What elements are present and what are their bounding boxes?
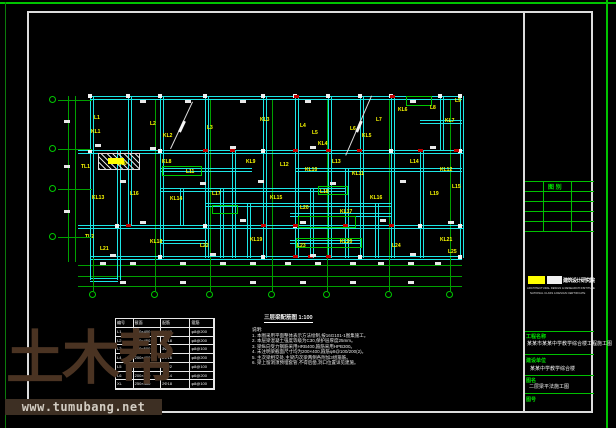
- dim-text: [64, 165, 70, 168]
- grid-bubble: [49, 233, 56, 240]
- beam-label: KL18: [150, 240, 162, 245]
- beam-label: L19: [430, 192, 439, 197]
- dim-text: [120, 281, 126, 284]
- titleblock-line: [525, 375, 594, 376]
- beam-label: L12: [280, 163, 289, 168]
- titleblock-line: [543, 181, 544, 231]
- beam: [247, 203, 251, 258]
- beam: [205, 96, 209, 258]
- field-value-client: 某某中学教学综合楼: [530, 365, 575, 372]
- dim-text: [240, 219, 246, 222]
- dim-text: [140, 221, 146, 224]
- beam-label: L8: [430, 106, 436, 111]
- beam-label: KL3: [260, 118, 269, 123]
- grid-line: [272, 100, 273, 258]
- dim-text: [150, 147, 156, 150]
- beam: [117, 258, 121, 280]
- rebar-mark: [326, 149, 331, 152]
- beam-label: L10: [118, 162, 127, 167]
- rebar-mark: [293, 224, 298, 227]
- beam: [232, 150, 236, 258]
- dim-text: [378, 262, 384, 265]
- dim-text: [240, 100, 246, 103]
- field-value-project: 某某市某某中学教学综合楼工程施工图: [527, 340, 612, 347]
- grid-line: [389, 258, 390, 291]
- beam-label: KL16: [370, 196, 382, 201]
- dim-text: [140, 100, 146, 103]
- joint-mark: [358, 94, 362, 98]
- joint-mark: [261, 255, 265, 259]
- beam-label: L2: [150, 122, 156, 127]
- beam-label: L11: [186, 170, 194, 175]
- dim-text: [310, 254, 316, 257]
- institute-logo-icon: [528, 276, 545, 284]
- beam-label: L5: [312, 131, 318, 136]
- rebar-mark: [261, 224, 266, 227]
- grid-line: [272, 258, 273, 291]
- joint-mark: [158, 94, 162, 98]
- joint-mark: [203, 94, 207, 98]
- grid-line: [58, 100, 92, 101]
- joint-mark: [458, 255, 462, 259]
- grid-line: [210, 258, 211, 291]
- dim-text: [95, 144, 101, 147]
- dim-text: [380, 219, 386, 222]
- dim-text: [315, 262, 321, 265]
- rebar-mark: [418, 149, 423, 152]
- beam: [460, 96, 464, 258]
- notes-list: 1. 本图采用平面整体表示方法绘制,按16G101-1图集施工。2. 本层梁混凝…: [252, 333, 368, 365]
- grid-bubble: [206, 291, 213, 298]
- institute-name: 建筑设计研究院: [563, 277, 595, 284]
- joint-mark: [126, 94, 130, 98]
- grid-line: [450, 258, 451, 291]
- beam: [375, 203, 379, 258]
- beam: [180, 188, 184, 225]
- beam-label: L7: [376, 118, 382, 123]
- joint-mark: [326, 94, 330, 98]
- dim-text: [310, 146, 316, 149]
- field-label-client: 建设单位: [526, 357, 546, 364]
- titleblock-line: [525, 221, 594, 222]
- rebar-mark: [230, 149, 235, 152]
- beam-label: KL20: [340, 240, 352, 245]
- beam: [420, 150, 424, 258]
- dim-text: [430, 146, 436, 149]
- dim-text: [120, 180, 126, 183]
- titleblock-line: [525, 331, 594, 332]
- grid-line: [58, 237, 92, 238]
- grid-bubble: [385, 291, 392, 298]
- beam-label: KL19: [250, 238, 262, 243]
- plan-title: 三层梁配筋图 1:100: [264, 313, 313, 323]
- dim-text: [200, 182, 206, 185]
- beam: [328, 96, 332, 258]
- beam-label: KL4: [318, 142, 327, 147]
- titleblock-line: [525, 393, 594, 394]
- rebar-mark: [203, 149, 208, 152]
- rebar-mark: [294, 95, 299, 98]
- dim-text: [64, 210, 70, 213]
- schedule-cell: φ8@200: [190, 328, 214, 337]
- beam: [78, 225, 464, 229]
- dim-text: [408, 262, 414, 265]
- joint-mark: [88, 94, 92, 98]
- dimension-line: [78, 265, 462, 266]
- beam-label: L4: [300, 124, 306, 129]
- beam-label: KL2: [163, 134, 172, 139]
- dim-text: [180, 281, 186, 284]
- rebar-mark: [454, 149, 459, 152]
- joint-mark: [203, 224, 207, 228]
- joint-mark: [158, 149, 162, 153]
- titleblock-divider: [523, 11, 525, 413]
- beam: [440, 96, 444, 150]
- grid-line: [327, 258, 328, 291]
- titleblock-line: [571, 181, 572, 231]
- schedule-cell: φ8@100: [190, 363, 214, 372]
- rebar-mark: [343, 224, 348, 227]
- grid-line: [210, 100, 211, 258]
- beam-label: KL10: [305, 168, 317, 173]
- beam-label: L15: [452, 185, 461, 190]
- titleblock-line: [525, 191, 594, 192]
- grid-bubble: [89, 291, 96, 298]
- field-label-project: 工程名称: [526, 333, 546, 340]
- institute-cert: NATIONAL CLASS A DESIGN CERTIFICATE: [530, 292, 585, 295]
- dim-text: [250, 262, 256, 265]
- cad-drawing-canvas: L1KL1L2KL2L3KL3L4L5KL4L6KL5L7KL6L8KL7L9T…: [0, 0, 616, 428]
- schedule-cell: φ8@200: [190, 354, 214, 363]
- dim-text: [305, 100, 311, 103]
- dim-text: [400, 180, 406, 183]
- beam-label: L25: [448, 250, 457, 255]
- schedule-cell: 箍筋: [190, 319, 214, 328]
- dim-text: [435, 262, 441, 265]
- grid-line: [93, 258, 94, 291]
- rebar-mark: [293, 149, 298, 152]
- beam-label: L20: [300, 206, 309, 211]
- dimension-line: [78, 276, 462, 277]
- detail-box: [212, 205, 238, 214]
- schedule-cell: φ8@200: [190, 337, 214, 346]
- beam: [295, 168, 462, 172]
- titleblock-line: [525, 354, 594, 355]
- dim-text: [410, 253, 416, 256]
- titleblock-line: [525, 211, 594, 212]
- sheet-border-right: [606, 0, 608, 428]
- grid-bubble: [446, 291, 453, 298]
- beam-label: KL13: [92, 196, 104, 201]
- beam-label: KL7: [445, 119, 454, 124]
- beam-label: L1: [94, 116, 100, 121]
- dim-text: [300, 281, 306, 284]
- dim-text: [250, 281, 256, 284]
- beam: [220, 188, 224, 258]
- schedule-cell: φ8@100: [190, 345, 214, 354]
- beam-label: KL11: [352, 172, 364, 177]
- dim-text: [300, 221, 306, 224]
- watermark-logo: 土木帮: [6, 330, 174, 388]
- beam-label: KL14: [170, 197, 182, 202]
- beam-label: KL21: [440, 238, 452, 243]
- beam-label: KL6: [398, 108, 407, 113]
- rebar-mark: [126, 224, 131, 227]
- beam-label: L17: [212, 192, 221, 197]
- dimension-line: [78, 286, 462, 287]
- grid-line: [389, 100, 390, 258]
- rebar-mark: [293, 255, 298, 258]
- sheet-border-top: [0, 2, 616, 4]
- grid-bubble: [49, 96, 56, 103]
- dim-text: [258, 180, 264, 183]
- beam: [90, 278, 118, 282]
- note-line: 6. 梁上留洞须预埋套管,不得后凿,洞口位置详见建施。: [252, 360, 368, 365]
- rebar-mark: [390, 95, 395, 98]
- watermark-url: www.tumubang.net: [5, 399, 162, 415]
- dim-text: [350, 281, 356, 284]
- beam-label: KL1: [91, 130, 100, 135]
- joint-mark: [358, 255, 362, 259]
- joint-mark: [438, 94, 442, 98]
- joint-mark: [158, 255, 162, 259]
- rebar-mark: [357, 149, 362, 152]
- beam-label: L23: [297, 244, 306, 249]
- beam-label: KL8: [162, 160, 171, 165]
- joint-mark: [389, 149, 393, 153]
- dim-text: [448, 221, 454, 224]
- grid-bubble: [323, 291, 330, 298]
- dim-text: [330, 182, 336, 185]
- dim-text: [230, 146, 236, 149]
- beam-label: L21: [100, 247, 109, 252]
- dim-text: [410, 100, 416, 103]
- beam-label: L14: [410, 160, 419, 165]
- beam-label: L22: [200, 244, 209, 249]
- beam-label: KL17: [340, 210, 352, 215]
- dim-text: [408, 281, 414, 284]
- beam: [160, 96, 164, 258]
- schedule-cell: φ6@200: [190, 372, 214, 381]
- beam: [295, 96, 299, 258]
- beam-label: L6: [350, 127, 356, 132]
- dim-text: [220, 262, 226, 265]
- detail-box: [162, 166, 202, 176]
- beam-label: KL5: [362, 134, 371, 139]
- dim-text: [350, 262, 356, 265]
- beam-label: L18: [320, 190, 329, 195]
- grid-bubble: [49, 145, 56, 152]
- titleblock-line: [525, 201, 594, 202]
- field-value-sheet-name: 二层梁平法施工图: [529, 383, 569, 390]
- beam-label: KL15: [270, 196, 282, 201]
- dim-text: [130, 262, 136, 265]
- beam-label: L16: [130, 192, 139, 197]
- joint-mark: [418, 224, 422, 228]
- grid-line: [58, 149, 92, 150]
- beam-label: L3: [207, 126, 213, 131]
- beam: [391, 96, 395, 258]
- dim-text: [64, 120, 70, 123]
- dim-text: [100, 262, 106, 265]
- rebar-mark: [389, 224, 394, 227]
- sheet-type-label: 图 别: [548, 182, 562, 191]
- notes-block: 三层梁配筋图 1:100 说明: 1. 本图采用平面整体表示方法绘制,按16G1…: [252, 306, 368, 365]
- note-line: 4. 未注明梁截面尺寸均为200×400,箍筋φ8@100/200(2)。: [252, 349, 368, 354]
- beam-label: L9: [455, 99, 461, 104]
- beam: [90, 256, 462, 260]
- field-label-sheet-no: 图号: [526, 396, 536, 403]
- beam-label: L13: [332, 160, 341, 165]
- grid-bubble: [49, 185, 56, 192]
- schedule-cell: φ8@100: [190, 380, 214, 389]
- dim-text: [210, 253, 216, 256]
- beam-label: L24: [392, 244, 401, 249]
- joint-mark: [458, 224, 462, 228]
- beam-label: KL12: [440, 168, 452, 173]
- grid-bubble: [268, 291, 275, 298]
- grid-line: [58, 189, 92, 190]
- beam-label: TL1: [81, 165, 90, 170]
- joint-mark: [261, 149, 265, 153]
- dim-text: [185, 100, 191, 103]
- institute-name-en: ARCHITECTURAL DESIGN & RESEARCH INSTITUT…: [527, 287, 595, 290]
- dim-text: [180, 262, 186, 265]
- dim-text: [110, 254, 116, 257]
- grid-bubble: [151, 291, 158, 298]
- beam-label: KL9: [246, 160, 255, 165]
- titleblock-line: [525, 231, 594, 232]
- joint-mark: [115, 224, 119, 228]
- grid-line: [155, 258, 156, 291]
- dim-text: [285, 262, 291, 265]
- joint-mark: [261, 94, 265, 98]
- institute-logo-mark: [547, 276, 562, 284]
